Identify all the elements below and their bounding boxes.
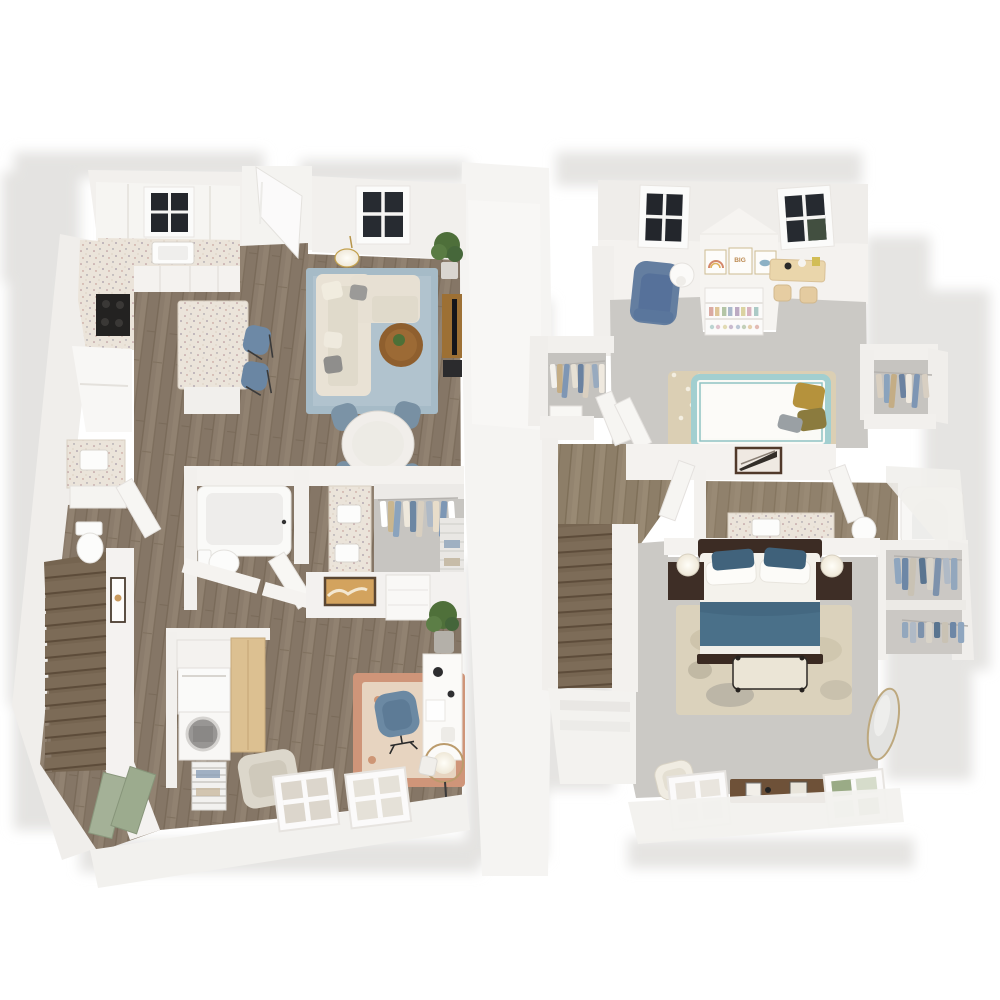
svg-text:BIG: BIG [734, 257, 746, 264]
